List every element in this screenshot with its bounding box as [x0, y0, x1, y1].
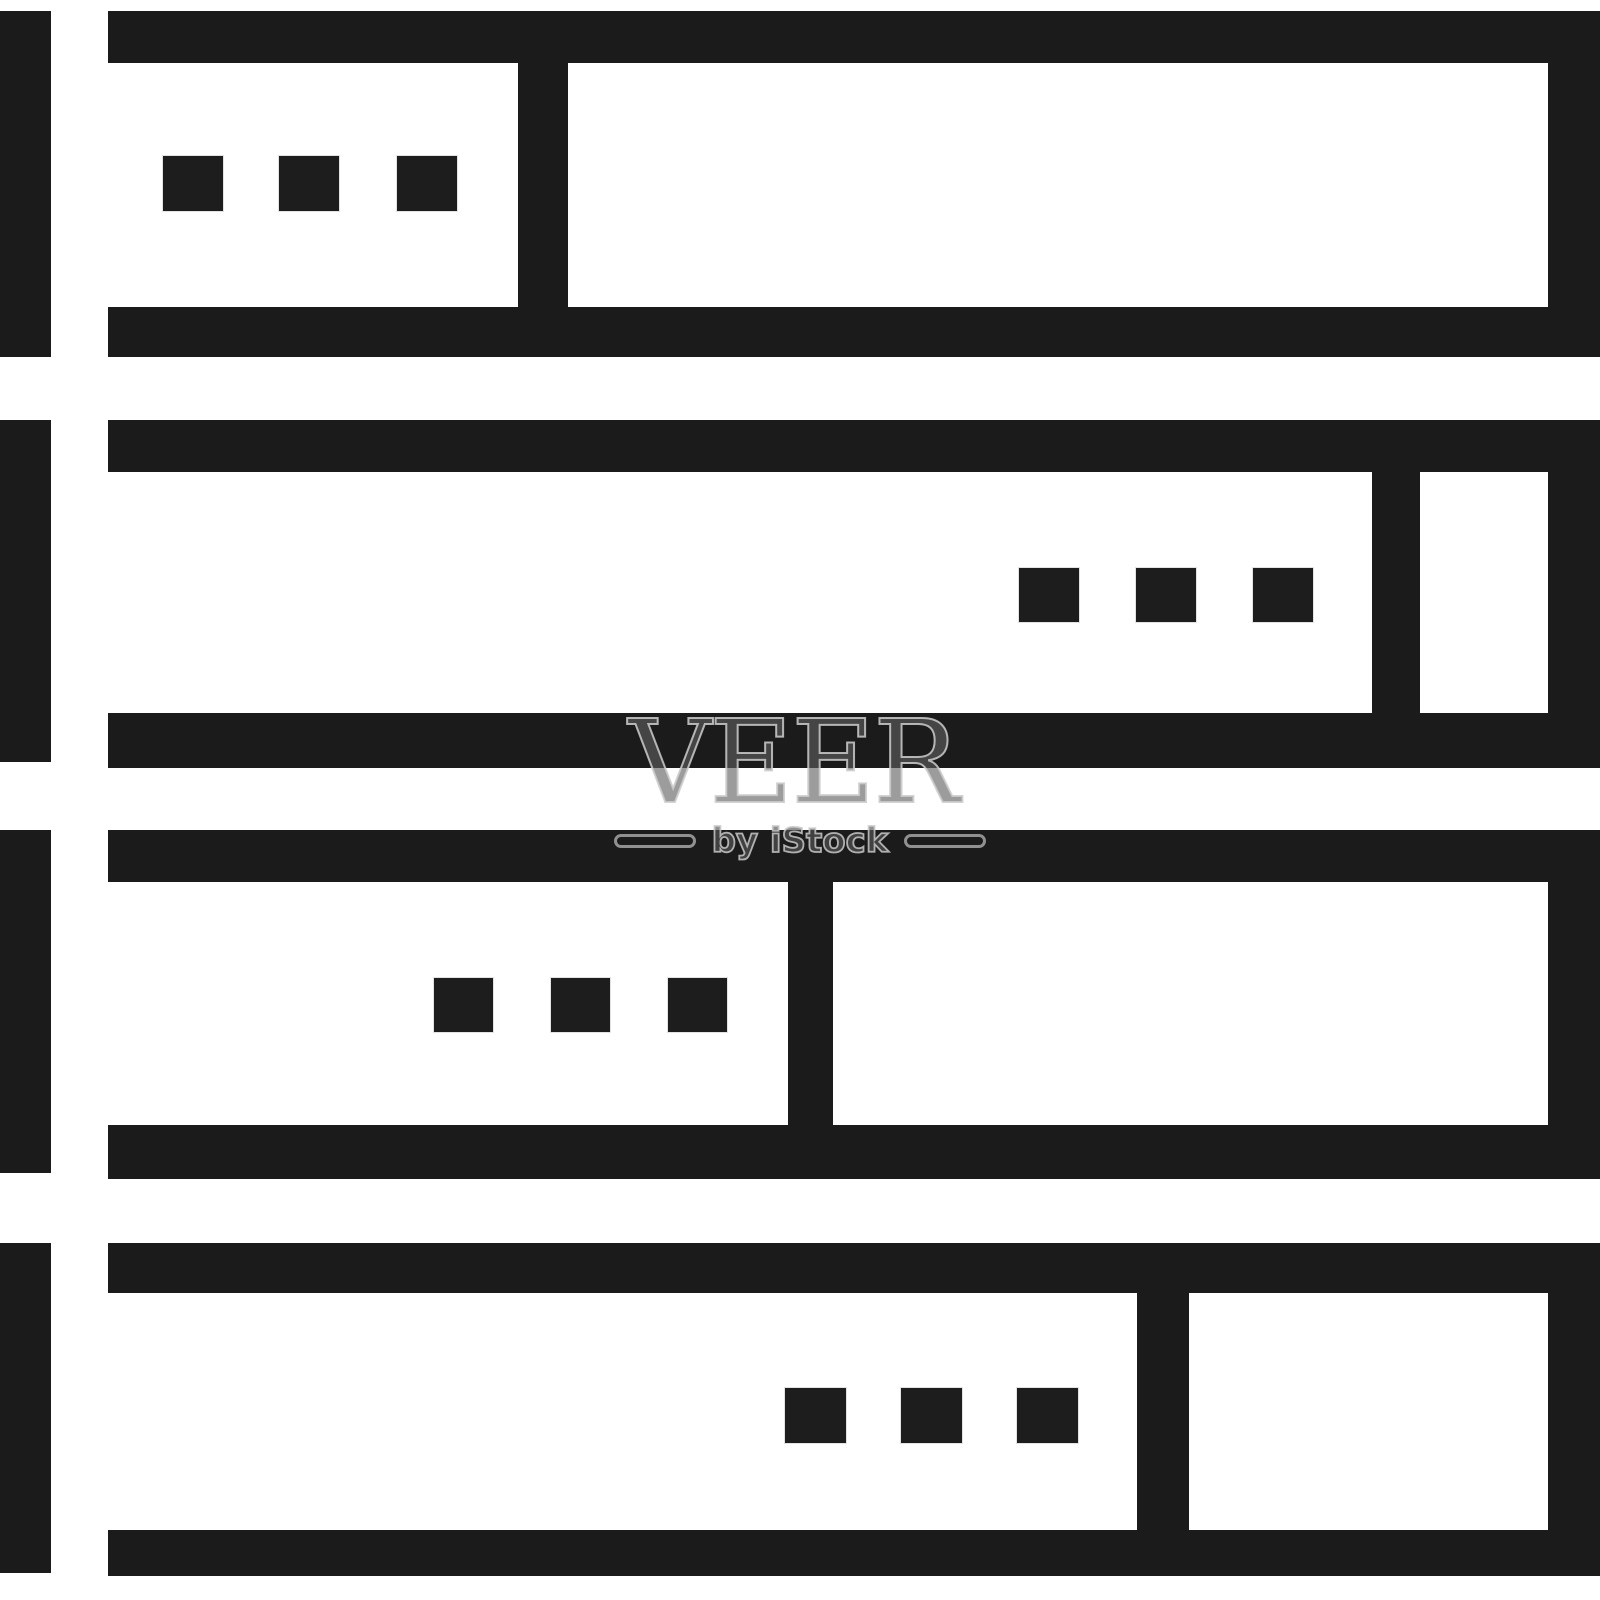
- server-unit-3-indicator-dot-1: [434, 978, 493, 1032]
- server-unit-1-indicator-dot-1: [163, 156, 223, 211]
- server-unit-4-divider: [1137, 1293, 1189, 1530]
- server-unit-1-divider: [518, 63, 568, 307]
- server-unit-1-right-wall: [1548, 63, 1600, 307]
- server-unit-1-left-bar: [0, 11, 51, 357]
- server-unit-3-left-bar: [0, 830, 51, 1173]
- server-unit-3-divider: [788, 882, 833, 1125]
- server-unit-4-right-wall: [1548, 1293, 1600, 1530]
- server-unit-3-right-wall: [1548, 882, 1600, 1125]
- server-unit-3-indicator-dot-3: [668, 978, 727, 1032]
- server-unit-4-left-bar: [0, 1243, 51, 1573]
- server-unit-4-indicator-dot-3: [1017, 1388, 1078, 1443]
- server-unit-4-top-rail: [108, 1243, 1600, 1293]
- server-unit-3-top-rail: [108, 830, 1600, 882]
- server-unit-2-indicator-dot-1: [1019, 568, 1079, 622]
- server-unit-2-bottom-rail: [108, 713, 1600, 768]
- server-unit-1-indicator-dot-2: [279, 156, 339, 211]
- server-unit-2-indicator-dot-3: [1253, 568, 1313, 622]
- stock-icon-image: VEER by iStock: [0, 0, 1600, 1600]
- watermark: VEER by iStock: [0, 0, 1600, 1600]
- server-unit-4-indicator-dot-2: [901, 1388, 962, 1443]
- server-unit-2-top-rail: [108, 420, 1600, 472]
- server-unit-4-indicator-dot-1: [785, 1388, 846, 1443]
- server-unit-1-indicator-dot-3: [397, 156, 457, 211]
- server-unit-2-left-bar: [0, 420, 51, 762]
- server-unit-1-bottom-rail: [108, 307, 1600, 357]
- server-unit-3-bottom-rail: [108, 1125, 1600, 1179]
- server-unit-2-right-wall: [1548, 472, 1600, 713]
- server-unit-1-top-rail: [108, 11, 1600, 63]
- server-unit-3-indicator-dot-2: [551, 978, 610, 1032]
- server-unit-4-bottom-rail: [108, 1530, 1600, 1576]
- server-unit-2-divider: [1372, 472, 1420, 713]
- server-unit-2-indicator-dot-2: [1136, 568, 1196, 622]
